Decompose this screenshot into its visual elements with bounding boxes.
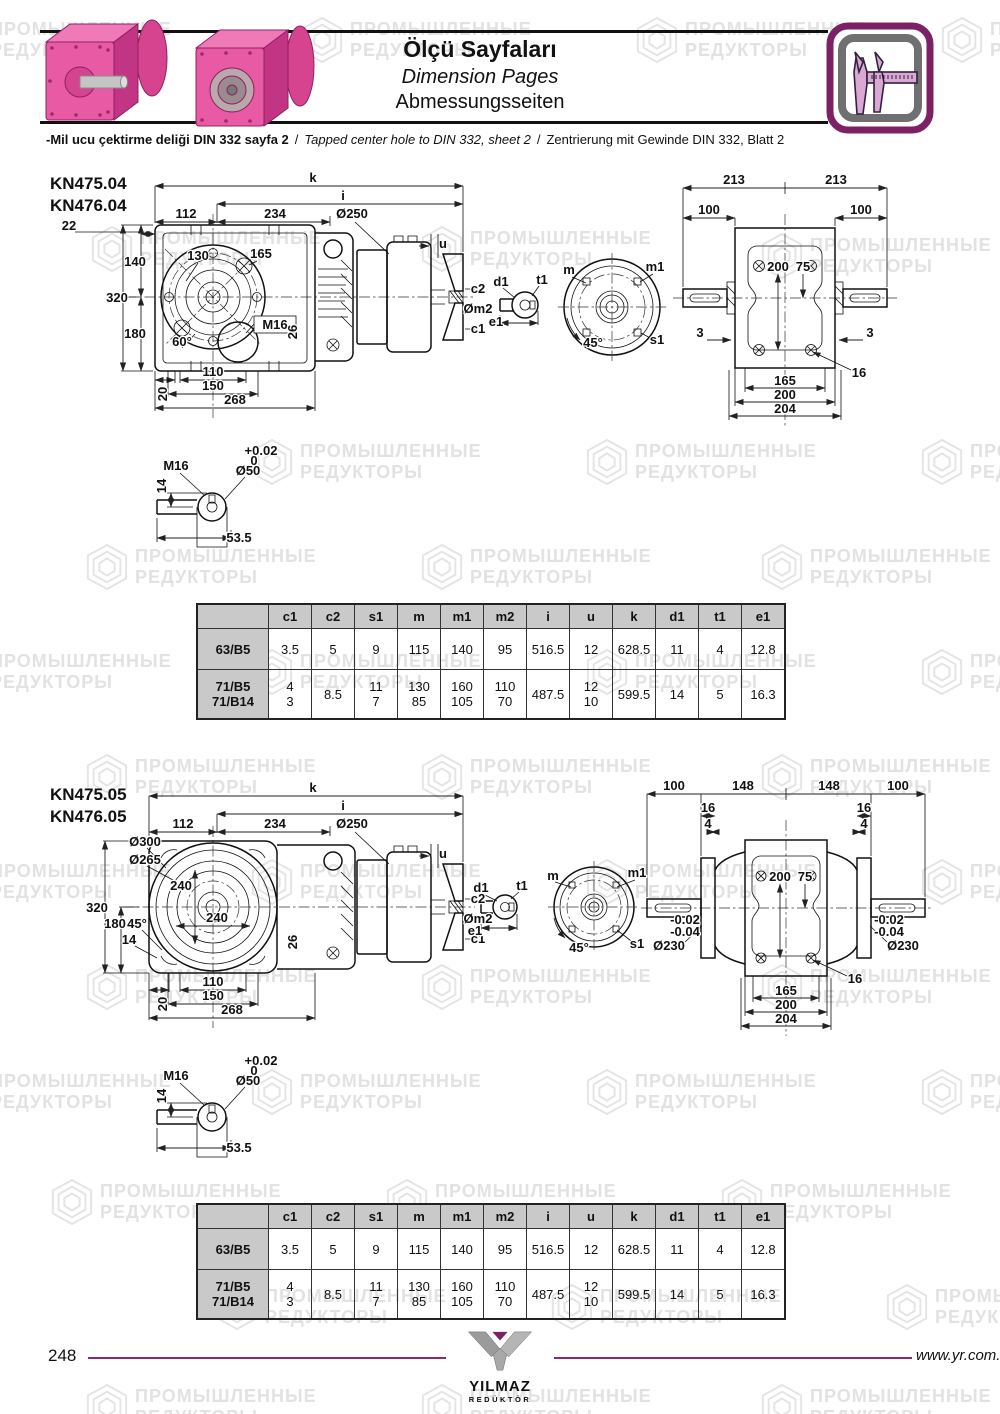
yilmaz-logo-icon: [465, 1330, 535, 1374]
corner-cell: [197, 1204, 269, 1229]
dimension-label: 26: [285, 325, 300, 339]
dimension-label: d1: [493, 274, 508, 289]
dimension-label: 268: [221, 1002, 243, 1017]
value-cell: 110 70: [484, 1270, 527, 1320]
column-header: d1: [656, 604, 699, 629]
value-cell: 12.8: [742, 1229, 786, 1270]
column-header: t1: [699, 1204, 742, 1229]
value-cell: 160 105: [441, 670, 484, 720]
value-cell: 130 85: [398, 1270, 441, 1320]
column-header: u: [570, 604, 613, 629]
dimension-label: 26: [285, 935, 300, 949]
column-header: k: [613, 604, 656, 629]
dimension-table: c1c2s1mm1m2iukd1t1e163/B53.5591151409551…: [196, 1203, 786, 1320]
catalog-page: ПРОМЫШЛЕННЫЕРЕДУКТОРЫПРОМЫШЛЕННЫЕРЕДУКТО…: [0, 0, 1000, 1414]
dimension-label: 75: [798, 869, 812, 884]
dimension-label: 130: [187, 248, 209, 263]
dimension-label: 60°: [172, 334, 192, 349]
column-header: m: [398, 1204, 441, 1229]
dimension-label: Ø230: [887, 938, 919, 953]
side-view-drawing: [103, 796, 475, 1028]
dimension-label: m1: [628, 865, 647, 880]
value-cell: 4 3: [269, 1270, 312, 1320]
value-cell: 140: [441, 1229, 484, 1270]
dimension-label: 100: [663, 780, 685, 793]
dimension-label: e1: [468, 923, 482, 938]
column-header: u: [570, 1204, 613, 1229]
dimension-label: 110: [203, 364, 224, 379]
column-header: c2: [312, 604, 355, 629]
column-header: c1: [269, 1204, 312, 1229]
dimension-label: u: [439, 236, 447, 251]
dimension-label: c2: [471, 281, 485, 296]
dimension-table: c1c2s1mm1m2iukd1t1e163/B53.5591151409551…: [196, 603, 786, 720]
dimension-label: 213: [825, 172, 847, 187]
column-header: t1: [699, 604, 742, 629]
dimension-label: 234: [264, 816, 286, 831]
value-cell: 11 7: [355, 1270, 398, 1320]
dimension-label: 165: [774, 373, 796, 388]
value-cell: 12: [570, 629, 613, 670]
value-cell: 599.5: [613, 670, 656, 720]
dimension-label: i: [341, 188, 345, 203]
value-cell: 628.5: [613, 1229, 656, 1270]
dimension-label: Ø50: [236, 1073, 261, 1088]
dimension-label: 320: [86, 900, 108, 915]
value-cell: 599.5: [613, 1270, 656, 1320]
dimension-label: 204: [775, 1011, 797, 1026]
dimension-label: 112: [173, 816, 194, 831]
column-header: s1: [355, 1204, 398, 1229]
value-cell: 12: [570, 1229, 613, 1270]
dimension-label: 45°: [569, 940, 589, 955]
dimension-label: 150: [202, 378, 224, 393]
value-cell: 516.5: [527, 629, 570, 670]
dimension-label: 268: [224, 392, 246, 407]
dimension-label: 234: [264, 206, 286, 221]
page-title-english: Dimension Pages: [300, 66, 660, 89]
shaft-end-view: [500, 286, 539, 325]
dimension-label: s1: [650, 332, 664, 347]
dimension-label: 110: [203, 974, 224, 989]
row-label: 71/B5 71/B14: [197, 1270, 269, 1320]
value-cell: 14: [656, 670, 699, 720]
dimension-label: 3: [696, 325, 703, 340]
dimension-label: 14: [154, 478, 169, 493]
value-cell: 115: [398, 1229, 441, 1270]
dimension-label: 22: [62, 218, 76, 233]
caliper-icon: [826, 22, 934, 134]
dimension-label: 45°: [127, 916, 147, 931]
dimension-label: 165: [250, 246, 272, 261]
dimension-label: u: [439, 846, 447, 861]
dimension-label: 148: [818, 780, 840, 793]
note-german: Zentrierung mit Gewinde DIN 332, Blatt 2: [546, 132, 784, 147]
dimension-label: 4: [860, 816, 868, 831]
dimension-label: 180: [104, 916, 126, 931]
dimension-label: k: [309, 780, 317, 795]
page-title: Ölçü Sayfaları: [300, 36, 660, 63]
value-cell: 11: [656, 629, 699, 670]
dimension-label: i: [341, 798, 345, 813]
dimension-label: 240: [206, 910, 228, 925]
value-cell: 11: [656, 1229, 699, 1270]
dimension-label: m: [563, 262, 575, 277]
page-title-german: Abmessungsseiten: [300, 91, 660, 114]
dimension-label: 200: [774, 387, 796, 402]
value-cell: 487.5: [527, 670, 570, 720]
dimension-label: 140: [124, 254, 146, 269]
page-title-block: Ölçü Sayfaları Dimension Pages Abmessung…: [300, 36, 660, 114]
dimension-label: 150: [202, 988, 224, 1003]
logo-text-top: YILMAZ: [452, 1379, 548, 1394]
technical-drawing-section-1: ki112234Ø2502214032018013016560°M1626201…: [45, 170, 955, 555]
dimension-label: M16: [163, 458, 188, 473]
column-header: m2: [484, 604, 527, 629]
dimension-label: t1: [516, 878, 528, 893]
dimension-label: 14: [154, 1088, 169, 1103]
note-separator: /: [531, 132, 547, 147]
note-english: Tapped center hole to DIN 332, sheet 2: [304, 132, 530, 147]
dimension-label: 3: [866, 325, 873, 340]
row-label: 71/B5 71/B14: [197, 670, 269, 720]
yilmaz-logo: YILMAZ REDÜKTÖR: [452, 1330, 548, 1404]
corner-cell: [197, 604, 269, 629]
value-cell: 5: [312, 1229, 355, 1270]
dimension-label: 100: [887, 780, 909, 793]
column-header: i: [527, 604, 570, 629]
column-header: e1: [742, 604, 786, 629]
column-header: d1: [656, 1204, 699, 1229]
dimension-labels: ki112234Ø2502214032018013016560°M1626201…: [62, 170, 874, 545]
dimension-label: m: [547, 868, 559, 883]
dimension-table-2: c1c2s1mm1m2iukd1t1e163/B53.5591151409551…: [196, 1203, 786, 1320]
value-cell: 5: [699, 670, 742, 720]
dimension-label: 75: [796, 259, 810, 274]
website-url: www.yr.com.tr: [916, 1347, 1000, 1364]
value-cell: 11 7: [355, 670, 398, 720]
value-cell: 8.5: [312, 670, 355, 720]
dimension-label: 100: [850, 202, 872, 217]
column-header: e1: [742, 1204, 786, 1229]
value-cell: 160 105: [441, 1270, 484, 1320]
column-header: m: [398, 604, 441, 629]
dimension-label: 53.5: [226, 1140, 251, 1155]
dimension-label: k: [309, 170, 317, 185]
value-cell: 140: [441, 629, 484, 670]
dimension-label: 200: [769, 869, 791, 884]
row-label: 63/B5: [197, 629, 269, 670]
value-cell: 8.5: [312, 1270, 355, 1320]
dimension-label: 180: [124, 326, 146, 341]
dimension-label: 200: [767, 259, 789, 274]
column-header: i: [527, 1204, 570, 1229]
dimension-label: 20: [155, 387, 170, 401]
dimension-label: 200: [775, 997, 797, 1012]
dimension-label: 112: [176, 206, 197, 221]
dimension-label: 16: [852, 365, 866, 380]
dimension-label: M16: [163, 1068, 188, 1083]
footer-rule-left: [88, 1357, 446, 1359]
dimension-label: m1: [646, 259, 665, 274]
dimension-label: 53.5: [226, 530, 251, 545]
value-cell: 95: [484, 1229, 527, 1270]
value-cell: 5: [699, 1270, 742, 1320]
value-cell: 4 3: [269, 670, 312, 720]
dimension-label: 100: [698, 202, 720, 217]
dimension-label: 320: [106, 290, 128, 305]
value-cell: 9: [355, 1229, 398, 1270]
page-number: 248: [48, 1346, 76, 1366]
dimension-label: s1: [630, 936, 644, 951]
value-cell: 628.5: [613, 629, 656, 670]
column-header: m1: [441, 1204, 484, 1229]
value-cell: 4: [699, 629, 742, 670]
value-cell: 14: [656, 1270, 699, 1320]
dimension-label: e1: [489, 314, 503, 329]
column-header: k: [613, 1204, 656, 1229]
row-label: 63/B5: [197, 1229, 269, 1270]
column-header: m1: [441, 604, 484, 629]
column-header: c1: [269, 604, 312, 629]
dimension-label: 20: [155, 997, 170, 1011]
dimension-label: 16: [848, 971, 862, 986]
value-cell: 130 85: [398, 670, 441, 720]
value-cell: 95: [484, 629, 527, 670]
dimension-label: 148: [732, 780, 754, 793]
dimension-label: Ø300: [129, 834, 161, 849]
din-note: -Mil ucu çektirme deliği DIN 332 sayfa 2…: [46, 132, 784, 147]
value-cell: 4: [699, 1229, 742, 1270]
value-cell: 12.8: [742, 629, 786, 670]
value-cell: 16.3: [742, 670, 786, 720]
dimension-label: 16: [857, 800, 871, 815]
dimension-label: -0.04: [670, 924, 700, 939]
dimension-label: 165: [775, 983, 797, 998]
value-cell: 12 10: [570, 1270, 613, 1320]
value-cell: 5: [312, 629, 355, 670]
value-cell: 12 10: [570, 670, 613, 720]
value-cell: 9: [355, 629, 398, 670]
column-header: s1: [355, 604, 398, 629]
footer-rule-right: [554, 1357, 912, 1359]
note-turkish: -Mil ucu çektirme deliği DIN 332 sayfa 2: [46, 132, 289, 147]
dimension-label: Ø230: [653, 938, 685, 953]
dimension-label: Ø250: [336, 816, 368, 831]
dimension-label: 213: [723, 172, 745, 187]
dimension-labels: ki112234Ø250Ø300Ø26524024032018045°14262…: [86, 780, 919, 1155]
dimension-label: d1: [473, 880, 488, 895]
logo-text-bottom: REDÜKTÖR: [452, 1396, 548, 1404]
column-header: c2: [312, 1204, 355, 1229]
dimension-label: t1: [536, 272, 548, 287]
gearbox-product-image: [36, 8, 328, 136]
column-header: m2: [484, 1204, 527, 1229]
flange-view: [548, 861, 640, 953]
dimension-table-1: c1c2s1mm1m2iukd1t1e163/B53.5591151409551…: [196, 603, 786, 720]
dimension-label: -0.04: [874, 924, 904, 939]
note-separator: /: [289, 132, 305, 147]
value-cell: 516.5: [527, 1229, 570, 1270]
dimension-label: 14: [122, 932, 137, 947]
technical-drawing-section-2: ki112234Ø250Ø300Ø26524024032018045°14262…: [45, 780, 955, 1165]
value-cell: 16.3: [742, 1270, 786, 1320]
dimension-label: Ø50: [236, 463, 261, 478]
dimension-label: 45°: [583, 335, 603, 350]
dimension-label: Ø265: [129, 852, 161, 867]
dimension-label: M16: [262, 317, 287, 332]
value-cell: 3.5: [269, 1229, 312, 1270]
value-cell: 487.5: [527, 1270, 570, 1320]
dimension-label: Ø250: [336, 206, 368, 221]
dimension-label: 4: [704, 816, 712, 831]
dimension-label: c1: [471, 321, 485, 336]
dimension-label: 16: [701, 800, 715, 815]
value-cell: 3.5: [269, 629, 312, 670]
value-cell: 115: [398, 629, 441, 670]
dimension-label: 240: [170, 878, 192, 893]
dimension-label: 204: [774, 401, 796, 416]
value-cell: 110 70: [484, 670, 527, 720]
